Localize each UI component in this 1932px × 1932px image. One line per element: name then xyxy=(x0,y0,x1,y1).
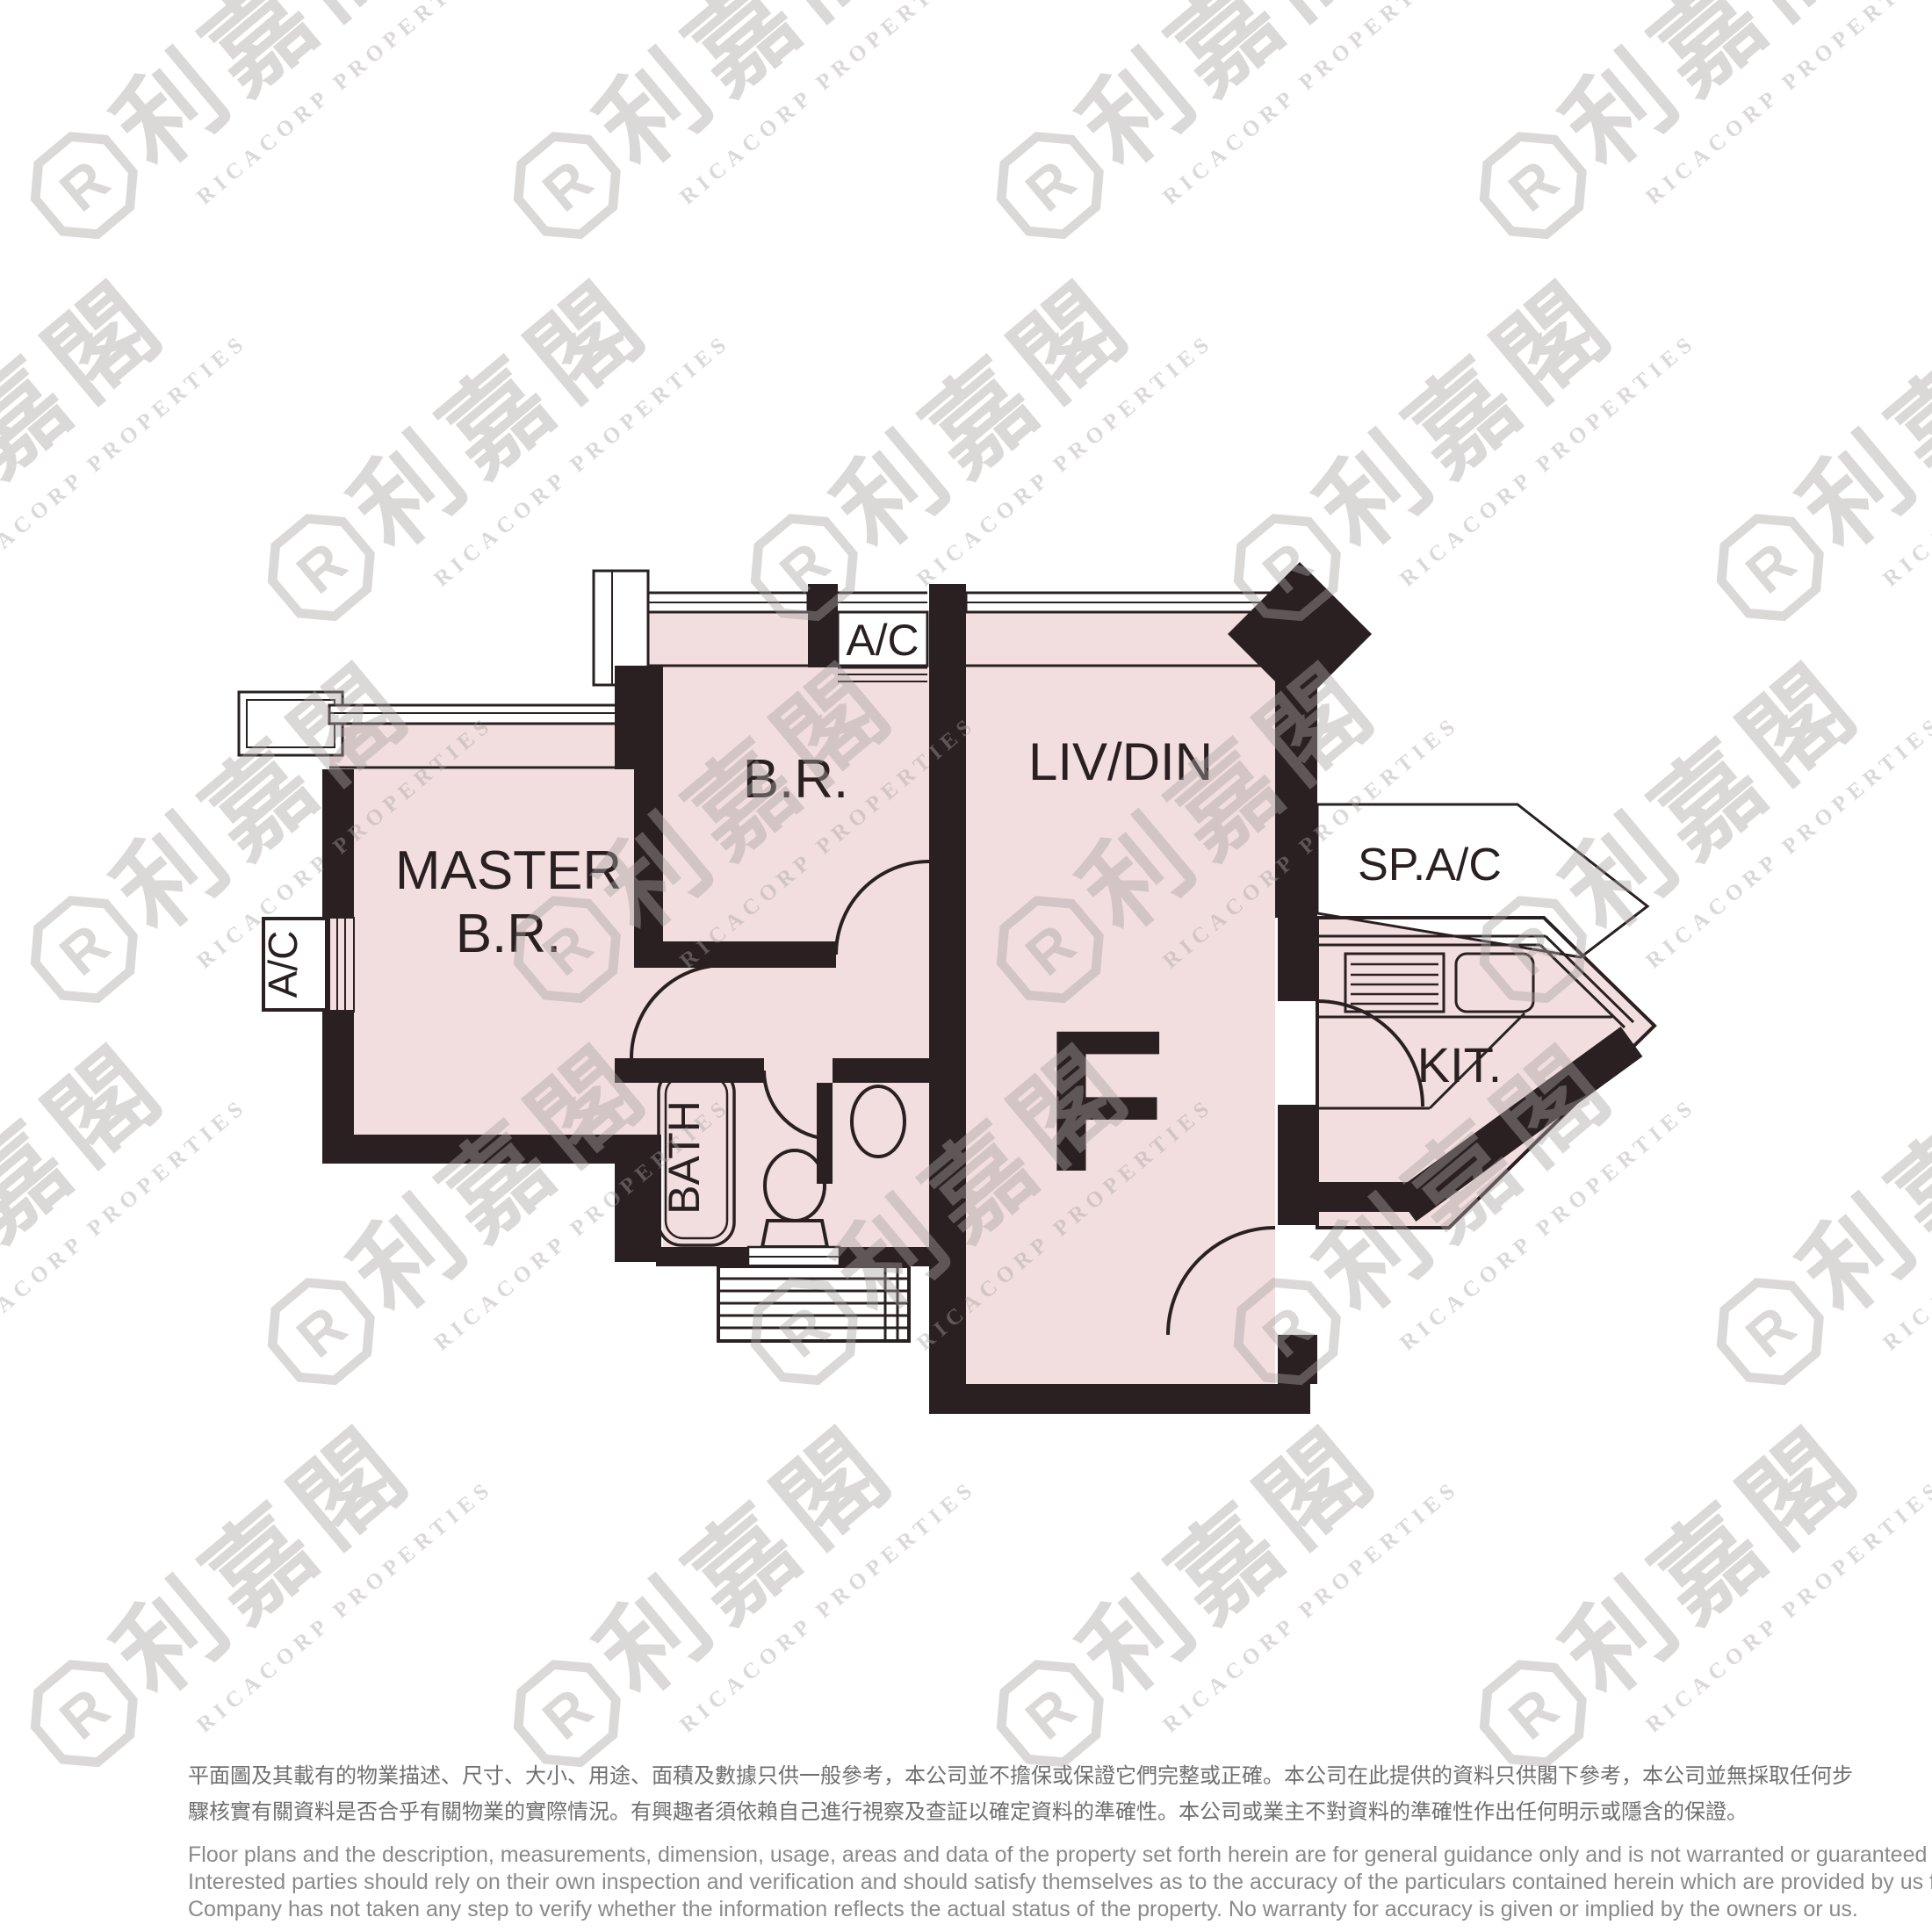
disclaimer-english: Floor plans and the description, measure… xyxy=(188,1842,1769,1923)
label-sp-ac: SP.A/C xyxy=(1358,840,1502,890)
label-ac-top: A/C xyxy=(846,616,919,665)
label-unit-letter: F xyxy=(1043,988,1167,1214)
master-window-sill xyxy=(329,724,634,768)
disclaimer-english-line1: Floor plans and the description, measure… xyxy=(188,1842,1769,1869)
disclaimer-english-line2: Interested parties should rely on their … xyxy=(188,1869,1769,1896)
toilet-base xyxy=(762,1221,827,1247)
floor-plan: MASTER B.R. B.R. LIV/DIN A/C A/C SP.A/C … xyxy=(0,0,1932,1932)
master-window-band xyxy=(329,705,634,724)
disclaimer-chinese-line1: 平面圖及其載有的物業描述、尺寸、大小、用途、面積及數據只供一般參考，本公司並不擔… xyxy=(188,1758,1769,1794)
label-ac-left: A/C xyxy=(260,931,306,998)
disclaimer-english-line3: Company has not taken any step to verify… xyxy=(188,1896,1769,1923)
master-corner-window xyxy=(239,692,342,755)
label-bath: BATH xyxy=(660,1100,709,1215)
master-door-gap xyxy=(634,962,663,1058)
living-window-sill xyxy=(966,612,1275,666)
disclaimer: 平面圖及其載有的物業描述、尺寸、大小、用途、面積及數據只供一般參考，本公司並不擔… xyxy=(188,1758,1769,1923)
label-master-line2: B.R. xyxy=(456,904,562,964)
toilet-bowl xyxy=(765,1150,825,1221)
label-living-dining: LIV/DIN xyxy=(1028,732,1213,791)
label-master-line1: MASTER xyxy=(395,840,622,901)
master-side-window-strip xyxy=(329,918,354,1012)
floor-plan-page: MASTER B.R. B.R. LIV/DIN A/C A/C SP.A/C … xyxy=(0,0,1932,1932)
disclaimer-chinese-line2: 驟核實有關資料是否合乎有關物業的實際情況。有興趣者須依賴自己進行視察及查証以確定… xyxy=(188,1794,1769,1830)
label-kitchen: KIT. xyxy=(1417,1037,1502,1092)
label-bedroom: B.R. xyxy=(743,749,849,810)
